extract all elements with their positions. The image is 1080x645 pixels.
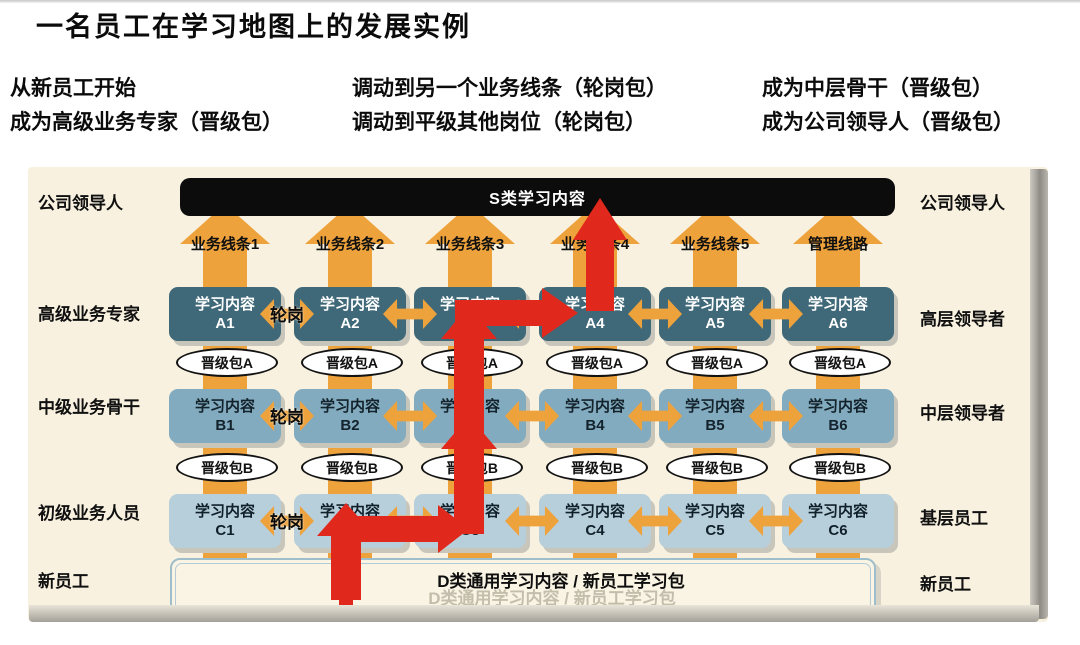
rotation-label-row-c: 轮岗: [257, 508, 317, 533]
box-code: B2: [340, 416, 359, 435]
box-title: 学习内容: [808, 295, 868, 314]
box-title: 学习内容: [808, 397, 868, 416]
milestone-transfer-line: 调动到另一个业务线条（轮岗包）: [352, 72, 667, 106]
box-code: C1: [215, 521, 234, 540]
milestone-middle-backbone: 成为中层骨干（晋级包）: [762, 72, 1014, 106]
box-title: 学习内容: [565, 397, 625, 416]
column-label-6: 管理线路: [773, 233, 903, 254]
milestone-column-3: 成为中层骨干（晋级包） 成为公司领导人（晋级包）: [762, 72, 1014, 140]
milestone-column-2: 调动到另一个业务线条（轮岗包） 调动到平级其他岗位（轮岗包）: [352, 72, 667, 140]
promotion-package-b: 晋级包B: [789, 453, 891, 482]
box-title: 学习内容: [565, 502, 625, 521]
box-title: 学习内容: [808, 502, 868, 521]
promotion-package-a: 晋级包A: [789, 348, 891, 377]
promotion-package-a: 晋级包A: [176, 348, 278, 377]
box-code: C5: [705, 521, 724, 540]
left-label-middle-backbone: 中级业务骨干: [38, 393, 140, 418]
promotion-package-a: 晋级包A: [301, 348, 403, 377]
promotion-package-b: 晋级包B: [666, 453, 768, 482]
rotation-label-row-b: 轮岗: [257, 403, 317, 428]
box-title: 学习内容: [320, 295, 380, 314]
s-learning-bar-label: S类学习内容: [489, 185, 586, 209]
left-label-new-employee: 新员工: [38, 567, 89, 592]
left-label-senior-expert: 高级业务专家: [38, 300, 140, 325]
left-label-company-leader: 公司领导人: [38, 189, 123, 214]
promotion-package-b: 晋级包B: [301, 453, 403, 482]
right-label-senior-leader: 高层领导者: [920, 305, 1005, 330]
box-code: B5: [705, 416, 724, 435]
box-code: C4: [585, 521, 604, 540]
box-code: A5: [705, 314, 724, 333]
milestone-senior-expert: 成为高级业务专家（晋级包）: [10, 106, 283, 140]
box-code: A6: [828, 314, 847, 333]
milestone-company-leader: 成为公司领导人（晋级包）: [762, 106, 1014, 140]
milestone-transfer-peer: 调动到平级其他岗位（轮岗包）: [352, 106, 667, 140]
box-title: 学习内容: [685, 397, 745, 416]
promotion-package-b: 晋级包B: [176, 453, 278, 482]
column-label-2: 业务线条2: [285, 233, 415, 254]
promotion-package-a: 晋级包A: [546, 348, 648, 377]
box-title: 学习内容: [195, 295, 255, 314]
promotion-package-b: 晋级包B: [546, 453, 648, 482]
box-code: C6: [828, 521, 847, 540]
box-code: A1: [215, 314, 234, 333]
right-label-new-employee: 新员工: [920, 570, 971, 595]
slide: 一名员工在学习地图上的发展实例 从新员工开始 成为高级业务专家（晋级包） 调动到…: [0, 0, 1080, 645]
learning-map-panel: S类学习内容 业务线条1 业务线条2 业务线条3 业务线条4 业务线条5 管理线…: [28, 167, 1048, 622]
left-label-junior-staff: 初级业务人员: [38, 499, 140, 524]
career-path-segment-right-a4: [455, 300, 543, 326]
right-label-grassroots-staff: 基层员工: [920, 504, 988, 529]
career-path-segment-up-a3: [454, 338, 484, 436]
column-label-3: 业务线条3: [405, 233, 535, 254]
promotion-package-a: 晋级包A: [666, 348, 768, 377]
box-code: A2: [340, 314, 359, 333]
box-title: 学习内容: [685, 295, 745, 314]
box-title: 学习内容: [195, 397, 255, 416]
box-code: B6: [828, 416, 847, 435]
panel-right-bevel: [1030, 169, 1048, 619]
box-code: B1: [215, 416, 234, 435]
slide-title: 一名员工在学习地图上的发展实例: [36, 5, 471, 44]
s-learning-bar: S类学习内容: [180, 178, 895, 216]
box-title: 学习内容: [195, 502, 255, 521]
career-path-segment-up-s: [586, 239, 614, 311]
career-path-segment-up-c2: [331, 534, 361, 600]
panel-bottom-bevel: [29, 605, 1039, 622]
box-title: 学习内容: [685, 502, 745, 521]
career-path-segment-right-c3: [340, 516, 438, 542]
column-label-5: 业务线条5: [650, 233, 780, 254]
box-code: B4: [585, 416, 604, 435]
right-label-middle-leader: 中层领导者: [920, 399, 1005, 424]
box-title: 学习内容: [320, 397, 380, 416]
right-label-company-leader: 公司领导人: [920, 189, 1005, 214]
page-top-divider: [0, 0, 1080, 3]
milestone-column-1: 从新员工开始 成为高级业务专家（晋级包）: [10, 72, 283, 140]
column-label-1: 业务线条1: [160, 233, 290, 254]
rotation-label-row-a: 轮岗: [257, 301, 317, 326]
box-code: A4: [585, 314, 604, 333]
milestone-start: 从新员工开始: [10, 72, 283, 106]
career-path-segment-up-b3: [454, 447, 484, 534]
